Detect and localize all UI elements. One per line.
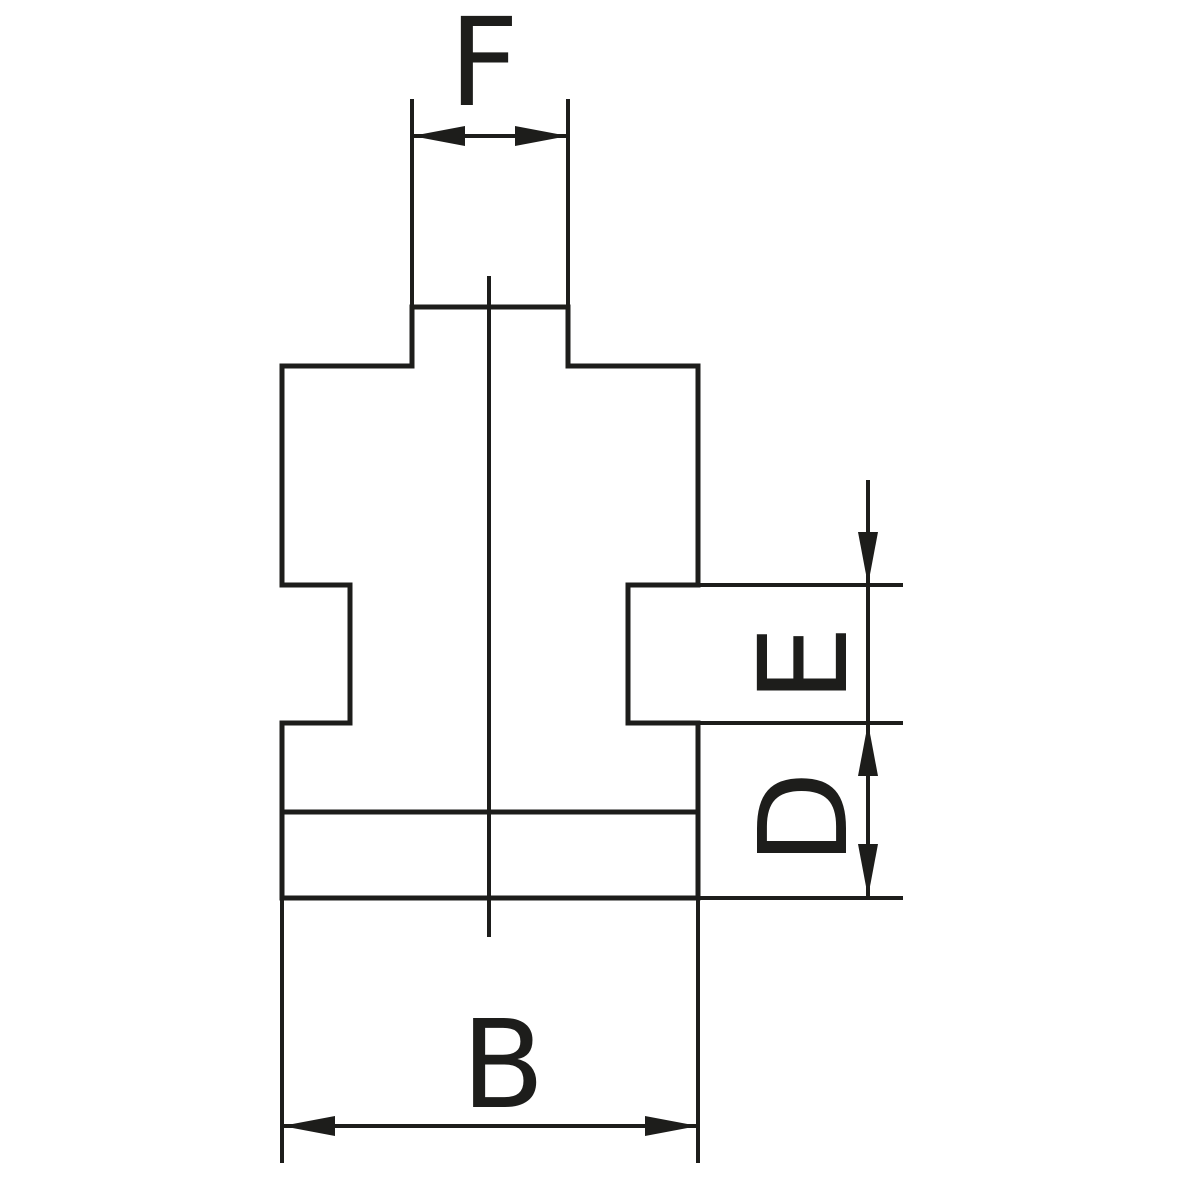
b-arrow-left	[282, 1116, 335, 1136]
f-arrow-right	[515, 126, 568, 146]
dimension-label-b: B	[461, 994, 545, 1136]
dimension-label-d: D	[733, 771, 875, 865]
dimension-label-f: F	[449, 0, 519, 134]
b-arrow-right	[645, 1116, 698, 1136]
ed-arrow-up	[858, 723, 878, 776]
dimension-labels-layer: F E D B	[449, 0, 875, 1136]
dimension-label-e: E	[733, 625, 875, 702]
e-arrow-down	[858, 532, 878, 585]
jaw-cross-section-drawing: F E D B	[0, 0, 1200, 1200]
technical-drawing-page: F E D B	[0, 0, 1200, 1200]
